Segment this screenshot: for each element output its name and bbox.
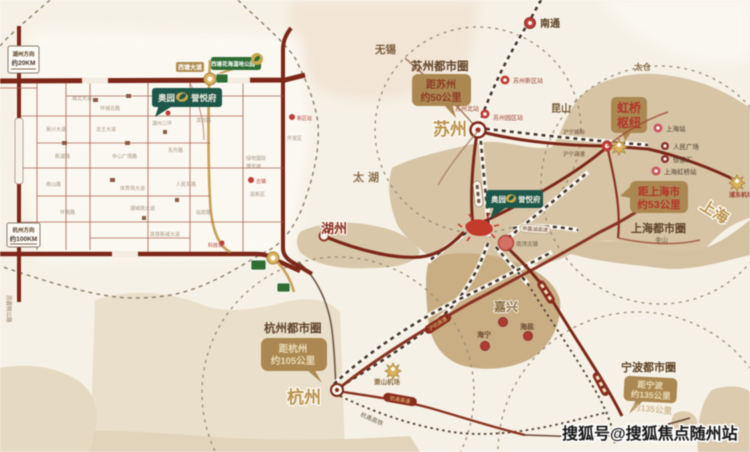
svg-text:誉悦府: 誉悦府 <box>517 194 541 204</box>
svg-text:苏州园区站: 苏州园区站 <box>493 114 523 122</box>
svg-text:人民东路: 人民东路 <box>176 181 196 188</box>
svg-text:沪宁城际: 沪宁城际 <box>563 128 586 136</box>
svg-text:誉悦府: 誉悦府 <box>190 93 217 103</box>
svg-text:昆山: 昆山 <box>551 102 571 115</box>
svg-text:科技城: 科技城 <box>208 242 223 249</box>
svg-text:太仓: 太仓 <box>633 62 652 72</box>
svg-text:龙王大道: 龙王大道 <box>96 126 116 133</box>
svg-text:金山: 金山 <box>655 235 668 244</box>
svg-text:环城北路: 环城北路 <box>100 105 120 112</box>
svg-text:站前路: 站前路 <box>196 209 211 216</box>
svg-text:杭州都市圈: 杭州都市圈 <box>264 321 322 335</box>
svg-text:距上海市: 距上海市 <box>638 185 680 198</box>
svg-text:高新区: 高新区 <box>250 191 265 198</box>
svg-text:海宁: 海宁 <box>477 330 491 339</box>
svg-text:徐家汇: 徐家汇 <box>673 155 693 164</box>
svg-text:苏州北站: 苏州北站 <box>455 105 479 113</box>
svg-text:约50公里: 约50公里 <box>420 91 461 104</box>
svg-text:约20KM: 约20KM <box>12 58 36 67</box>
svg-text:枢纽: 枢纽 <box>617 115 641 130</box>
svg-text:搜狐号@搜狐焦点随州站: 搜狐号@搜狐焦点随州站 <box>562 424 738 443</box>
svg-text:太湖: 太湖 <box>352 170 383 184</box>
svg-text:中心广场路: 中心广场路 <box>112 153 137 160</box>
svg-text:滨河路: 滨河路 <box>196 117 211 124</box>
svg-text:沪宁高速: 沪宁高速 <box>563 150 586 158</box>
svg-text:湖城南大道: 湖城南大道 <box>130 205 155 212</box>
svg-text:古镇: 古镇 <box>256 178 266 185</box>
svg-text:虹桥: 虹桥 <box>617 100 642 115</box>
svg-text:萧山机场: 萧山机场 <box>374 377 401 386</box>
svg-text:杭州方向: 杭州方向 <box>12 226 35 234</box>
svg-text:东升路: 东升路 <box>168 147 183 154</box>
svg-text:绿地国际: 绿地国际 <box>246 155 266 162</box>
svg-text:苏震桃公路: 苏震桃公路 <box>5 295 13 323</box>
svg-text:湖州: 湖州 <box>321 221 347 236</box>
svg-text:奥园: 奥园 <box>157 93 175 103</box>
svg-text:杭州: 杭州 <box>287 387 321 407</box>
svg-text:西塘大道: 西塘大道 <box>178 64 202 72</box>
svg-text:嘉兴: 嘉兴 <box>493 299 518 314</box>
svg-text:湖州方向: 湖州方向 <box>12 50 35 58</box>
svg-text:浦东机场: 浦东机场 <box>729 191 750 199</box>
svg-text:苏州: 苏州 <box>433 119 467 139</box>
svg-text:宁波都市圈: 宁波都市圈 <box>621 360 676 374</box>
svg-text:开发区: 开发区 <box>287 135 302 142</box>
svg-text:新湖路: 新湖路 <box>55 153 70 160</box>
svg-text:距苏州: 距苏州 <box>426 78 456 91</box>
svg-text:高铁新城大道: 高铁新城大道 <box>150 231 180 238</box>
svg-text:约100KM: 约100KM <box>10 234 37 243</box>
svg-text:海盐: 海盐 <box>520 322 534 331</box>
svg-text:约53公里: 约53公里 <box>637 198 681 211</box>
svg-text:上海站: 上海站 <box>666 124 686 133</box>
svg-text:博览城: 博览城 <box>246 163 261 170</box>
svg-text:无锡: 无锡 <box>374 43 396 56</box>
svg-text:体育场大道: 体育场大道 <box>120 185 145 192</box>
svg-text:南通: 南通 <box>540 17 560 30</box>
svg-text:南浔古镇: 南浔古镇 <box>516 240 539 248</box>
svg-text:人民广场: 人民广场 <box>673 142 700 151</box>
svg-text:苏州新区站: 苏州新区站 <box>513 77 543 85</box>
svg-text:约135公里: 约135公里 <box>631 389 672 401</box>
svg-text:上海都市圈: 上海都市圈 <box>631 221 686 235</box>
svg-text:奥园: 奥园 <box>490 194 506 204</box>
svg-text:城北大道: 城北大道 <box>72 95 92 102</box>
svg-text:吴兴大道: 吴兴大道 <box>46 126 66 133</box>
svg-text:环南路: 环南路 <box>60 209 75 216</box>
svg-text:新区站: 新区站 <box>297 115 312 122</box>
svg-text:约105公里: 约105公里 <box>271 355 316 367</box>
svg-text:湖州三环: 湖州三环 <box>152 120 172 127</box>
svg-text:西塘花海湿地公园: 西塘花海湿地公园 <box>211 60 256 68</box>
svg-text:苏州都市圈: 苏州都市圈 <box>411 59 469 73</box>
svg-text:距杭州: 距杭州 <box>279 343 308 355</box>
svg-text:上海虹桥站: 上海虹桥站 <box>664 167 697 176</box>
svg-text:南山路: 南山路 <box>46 181 61 188</box>
